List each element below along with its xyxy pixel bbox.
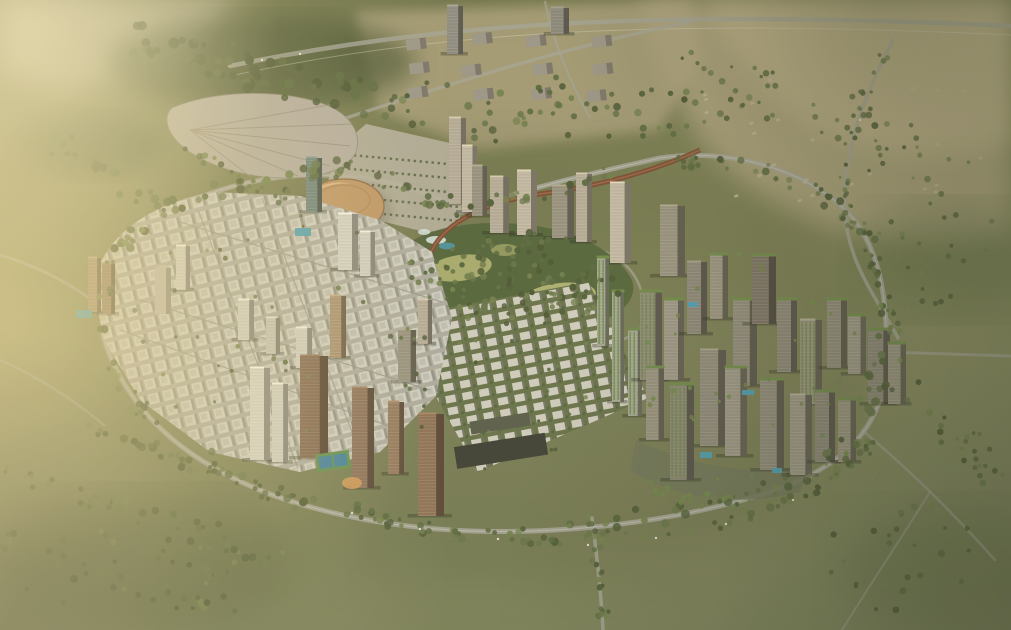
sepia-cast <box>0 0 1011 630</box>
aerial-city-render <box>0 0 1011 630</box>
scene-canvas <box>0 0 1011 630</box>
light-overlays <box>0 0 1011 630</box>
